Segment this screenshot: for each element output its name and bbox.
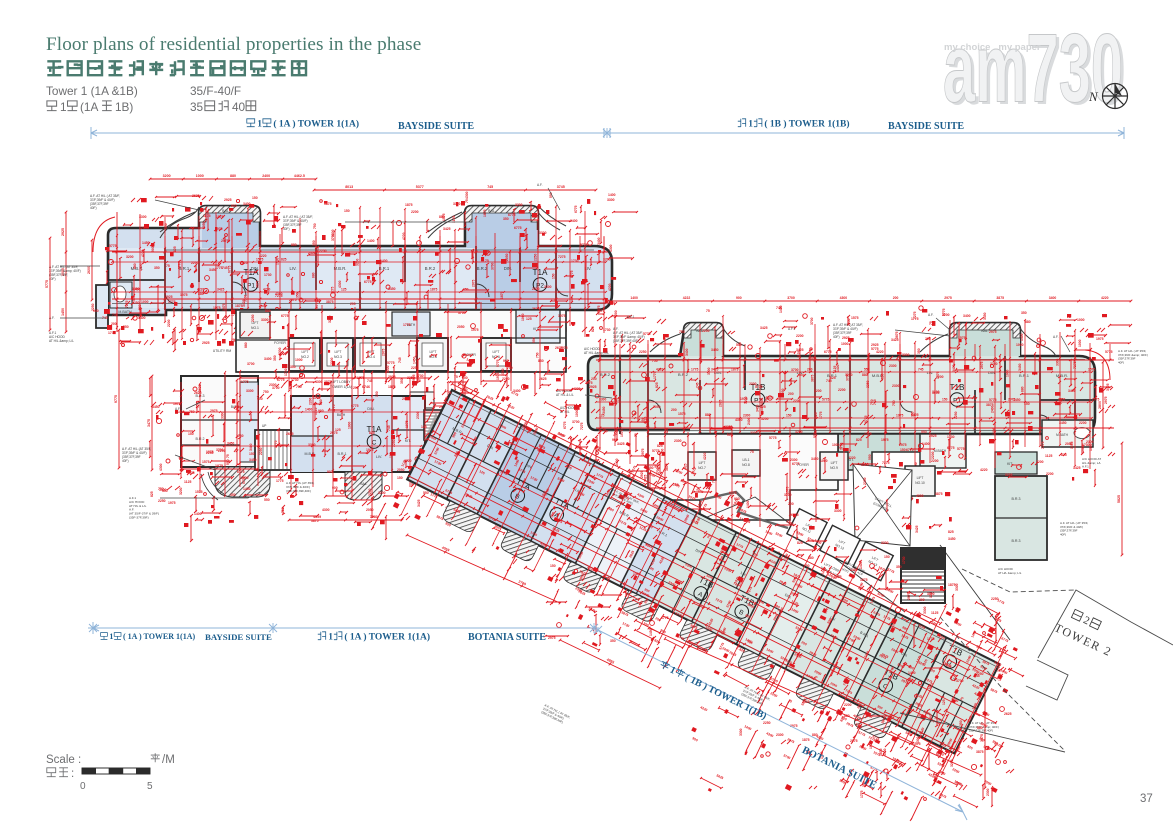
svg-text:2925: 2925 <box>842 336 850 340</box>
svg-text:5: 5 <box>147 781 153 792</box>
svg-text:3200: 3200 <box>881 541 889 545</box>
svg-text:350: 350 <box>463 288 469 292</box>
svg-text:LIFT LOBBY: LIFT LOBBY <box>331 380 351 384</box>
svg-text:3200: 3200 <box>932 390 940 394</box>
svg-text:3400: 3400 <box>963 314 971 318</box>
svg-text:1775: 1775 <box>860 790 864 798</box>
svg-text:1975: 1975 <box>405 420 409 428</box>
svg-text:1730: 1730 <box>902 556 906 564</box>
svg-text:LIFT: LIFT <box>430 350 437 354</box>
svg-text:125: 125 <box>421 425 427 429</box>
svg-text:2925: 2925 <box>224 198 232 202</box>
svg-text:3745: 3745 <box>557 185 565 189</box>
svg-text:1000: 1000 <box>820 459 828 463</box>
svg-text:1575: 1575 <box>195 490 203 494</box>
svg-text:M.BATH: M.BATH <box>1056 433 1069 437</box>
svg-text:125: 125 <box>173 246 177 252</box>
svg-text:150: 150 <box>397 476 403 480</box>
svg-text:2200: 2200 <box>1079 421 1087 425</box>
svg-text:200: 200 <box>807 368 813 372</box>
svg-text:2050: 2050 <box>366 508 374 512</box>
svg-text:2250: 2250 <box>158 499 166 503</box>
svg-text:6775: 6775 <box>792 462 800 466</box>
svg-text:B.R.3: B.R.3 <box>1012 539 1021 543</box>
svg-text:2300: 2300 <box>892 384 900 388</box>
svg-text:7275: 7275 <box>558 255 566 259</box>
svg-text:3300: 3300 <box>923 606 927 614</box>
svg-text:1975: 1975 <box>496 372 500 380</box>
svg-text:3700: 3700 <box>331 233 335 241</box>
svg-text:1000: 1000 <box>295 358 303 362</box>
svg-text:2975: 2975 <box>382 348 386 356</box>
svg-text:1: 1 <box>60 100 67 114</box>
svg-text:4220: 4220 <box>573 387 581 391</box>
svg-text:2050: 2050 <box>397 468 405 472</box>
svg-text:2975: 2975 <box>1008 398 1016 402</box>
svg-text:125: 125 <box>942 699 946 705</box>
svg-text:2625: 2625 <box>1004 712 1012 716</box>
svg-text:3300: 3300 <box>902 353 910 357</box>
svg-text:40F): 40F) <box>1060 532 1066 536</box>
svg-text:LIFT: LIFT <box>493 350 500 354</box>
svg-text:3400: 3400 <box>1049 296 1057 300</box>
svg-text:1400: 1400 <box>367 239 375 243</box>
svg-text:3300: 3300 <box>927 592 935 596</box>
svg-text:3300: 3300 <box>1056 358 1060 366</box>
svg-text:1575: 1575 <box>678 412 686 416</box>
svg-text:1400: 1400 <box>133 288 141 292</box>
svg-text:2300: 2300 <box>330 357 334 365</box>
svg-text:NO.7: NO.7 <box>698 466 706 470</box>
svg-text:3300: 3300 <box>221 411 225 419</box>
svg-text:1000: 1000 <box>141 300 149 304</box>
svg-text:AT H/L & L/L: AT H/L & L/L <box>556 393 574 397</box>
svg-text:5775: 5775 <box>769 436 777 440</box>
svg-text:3700: 3700 <box>791 368 799 372</box>
svg-text:A.F.1: A.F.1 <box>1082 465 1089 469</box>
svg-text:1125: 1125 <box>931 611 938 615</box>
svg-text:1975: 1975 <box>206 450 214 454</box>
svg-text:5775: 5775 <box>755 385 763 389</box>
svg-text:1575: 1575 <box>256 258 264 262</box>
svg-text:NO.10: NO.10 <box>915 481 925 485</box>
svg-text:AT H/L &amp; L/L: AT H/L &amp; L/L <box>49 339 74 343</box>
svg-text:5775: 5775 <box>496 359 500 367</box>
svg-text:750: 750 <box>652 359 658 363</box>
svg-text:AT H/L &amp; L/L: AT H/L &amp; L/L <box>998 571 1022 575</box>
svg-text:2925: 2925 <box>719 399 723 407</box>
svg-text:750: 750 <box>313 223 317 229</box>
svg-text:1875: 1875 <box>203 214 211 218</box>
svg-text:3450: 3450 <box>388 287 396 291</box>
svg-text:2250: 2250 <box>639 350 647 354</box>
svg-text:150: 150 <box>786 414 792 418</box>
svg-text:1125: 1125 <box>314 408 318 415</box>
svg-text:2200: 2200 <box>411 210 419 214</box>
svg-text:6775: 6775 <box>364 280 372 284</box>
svg-text:3875: 3875 <box>811 374 815 382</box>
svg-text:1: 1 <box>328 632 333 642</box>
svg-text:200: 200 <box>614 310 618 316</box>
svg-text:2400: 2400 <box>1081 444 1085 452</box>
svg-text:2300: 2300 <box>986 788 990 796</box>
svg-text:2200: 2200 <box>167 319 171 327</box>
svg-text:745: 745 <box>776 306 782 310</box>
svg-text:4300: 4300 <box>465 191 469 199</box>
svg-text:T1A: T1A <box>243 268 259 277</box>
svg-text:550: 550 <box>123 325 129 329</box>
svg-text:2975: 2975 <box>289 298 297 302</box>
svg-text:2300: 2300 <box>278 347 282 355</box>
svg-text:1000: 1000 <box>196 174 204 178</box>
svg-text:750: 750 <box>263 390 269 394</box>
svg-text:N: N <box>1088 89 1099 104</box>
svg-text:550: 550 <box>736 343 742 347</box>
svg-text:4220: 4220 <box>197 288 205 292</box>
svg-text:4300: 4300 <box>315 380 323 384</box>
svg-text:4220: 4220 <box>1101 296 1109 300</box>
svg-text:1975: 1975 <box>173 402 181 406</box>
svg-text:1975: 1975 <box>366 448 374 452</box>
svg-text:LIFT: LIFT <box>335 350 342 354</box>
svg-text:750: 750 <box>892 400 896 406</box>
svg-text:2300: 2300 <box>776 733 784 737</box>
svg-text:BAYSIDE SUITE: BAYSIDE SUITE <box>205 632 272 642</box>
svg-text:A.F.1: A.F.1 <box>175 407 182 411</box>
svg-text:1400: 1400 <box>570 219 578 223</box>
svg-text:900: 900 <box>503 359 509 363</box>
svg-text:1400: 1400 <box>661 448 665 456</box>
svg-text:350: 350 <box>911 411 915 417</box>
svg-text:150: 150 <box>252 196 258 200</box>
svg-text:75: 75 <box>226 454 230 458</box>
svg-text:880: 880 <box>977 726 983 730</box>
svg-text:6775: 6775 <box>508 213 516 217</box>
svg-text:3300: 3300 <box>834 509 842 513</box>
svg-text:5775: 5775 <box>652 449 660 453</box>
svg-text:350: 350 <box>641 417 645 423</box>
svg-text:2200: 2200 <box>931 459 939 463</box>
svg-text:1875: 1875 <box>405 203 413 207</box>
svg-text:0: 0 <box>80 781 86 792</box>
svg-text:my choice . my paper: my choice . my paper <box>944 42 1041 53</box>
svg-text:900: 900 <box>151 246 155 252</box>
svg-text:2925: 2925 <box>589 385 597 389</box>
svg-text:3700: 3700 <box>810 317 814 325</box>
svg-text:150: 150 <box>900 448 906 452</box>
svg-text:37: 37 <box>1140 793 1153 805</box>
svg-text:880: 880 <box>1021 386 1025 392</box>
svg-text:2925: 2925 <box>202 341 210 345</box>
svg-text:1575: 1575 <box>786 486 790 494</box>
svg-text:2975: 2975 <box>1092 398 1100 402</box>
svg-text:1450: 1450 <box>61 308 65 316</box>
svg-text:200: 200 <box>788 502 794 506</box>
svg-text:2600: 2600 <box>87 266 91 274</box>
svg-text:1775: 1775 <box>840 442 844 450</box>
svg-text:2250: 2250 <box>534 253 538 261</box>
svg-text:(1A: (1A <box>80 100 98 114</box>
svg-text:350: 350 <box>290 365 296 369</box>
svg-text:745: 745 <box>487 185 493 189</box>
svg-text:3425: 3425 <box>711 368 719 372</box>
svg-text:1975: 1975 <box>168 501 176 505</box>
svg-text:1000: 1000 <box>575 409 579 417</box>
svg-text:200: 200 <box>893 296 899 300</box>
svg-text:350: 350 <box>896 565 902 569</box>
svg-text:2250: 2250 <box>1058 398 1066 402</box>
svg-text:5775: 5775 <box>109 244 117 248</box>
svg-text:2925: 2925 <box>165 295 173 299</box>
svg-text:2250: 2250 <box>781 388 785 396</box>
svg-text:1730: 1730 <box>284 368 288 376</box>
svg-text:1875: 1875 <box>483 209 487 217</box>
svg-text:40F): 40F) <box>122 459 129 463</box>
svg-text:150: 150 <box>344 209 350 213</box>
svg-text:A.F.1: A.F.1 <box>788 327 795 331</box>
svg-text:880: 880 <box>244 342 248 348</box>
svg-text:2975: 2975 <box>980 361 984 369</box>
svg-text:1575: 1575 <box>913 742 921 746</box>
svg-text:A.F.: A.F. <box>1053 335 1059 339</box>
svg-text:1575: 1575 <box>213 306 221 310</box>
svg-text:2975: 2975 <box>585 381 593 385</box>
svg-text:880: 880 <box>265 309 271 313</box>
svg-text:880: 880 <box>812 733 818 737</box>
svg-text:3450: 3450 <box>948 537 956 541</box>
svg-text:NO.1: NO.1 <box>251 326 259 330</box>
svg-text:1400: 1400 <box>608 193 616 197</box>
svg-text:3875: 3875 <box>976 750 984 754</box>
svg-text:2050: 2050 <box>457 325 465 329</box>
svg-text:1400: 1400 <box>746 500 750 508</box>
svg-text:3300: 3300 <box>599 398 607 402</box>
svg-text:2250: 2250 <box>368 488 372 496</box>
svg-text:1775: 1775 <box>403 323 411 327</box>
svg-text:( 1A ) TOWER 1(1A): ( 1A ) TOWER 1(1A) <box>273 118 359 129</box>
svg-text:LIV.: LIV. <box>376 455 382 459</box>
svg-text:1730: 1730 <box>603 328 611 332</box>
svg-text:2625: 2625 <box>286 432 294 436</box>
svg-text:550: 550 <box>868 454 872 460</box>
svg-text:3875: 3875 <box>326 300 334 304</box>
svg-text:3400: 3400 <box>1068 389 1076 393</box>
svg-text:4300: 4300 <box>840 296 848 300</box>
svg-text:3200: 3200 <box>950 759 954 767</box>
svg-text:LIV.: LIV. <box>584 266 591 271</box>
svg-text:6775: 6775 <box>947 446 955 450</box>
svg-text:3425: 3425 <box>915 525 919 533</box>
svg-text:75: 75 <box>417 379 421 383</box>
svg-text:2250: 2250 <box>259 447 263 455</box>
svg-text:3400: 3400 <box>756 404 760 412</box>
svg-text:75: 75 <box>166 264 170 268</box>
svg-text:2200: 2200 <box>796 334 804 338</box>
svg-text:3425: 3425 <box>443 227 451 231</box>
svg-text:(35F,37F,39F,40F): (35F,37F,39F,40F) <box>613 339 639 343</box>
svg-text:4220: 4220 <box>141 249 145 257</box>
svg-text:880: 880 <box>1025 320 1031 324</box>
svg-text:2200: 2200 <box>844 703 852 707</box>
svg-text:6775: 6775 <box>237 470 245 474</box>
svg-text:A.F.: A.F. <box>537 183 543 187</box>
svg-text:3400: 3400 <box>264 357 272 361</box>
svg-text:2975: 2975 <box>907 592 911 600</box>
svg-text:2975: 2975 <box>899 443 907 447</box>
svg-text:2250: 2250 <box>725 425 733 429</box>
svg-text:1975: 1975 <box>896 414 904 418</box>
svg-text:2400: 2400 <box>747 417 751 425</box>
svg-text:2200: 2200 <box>838 388 846 392</box>
svg-text:1575: 1575 <box>851 316 859 320</box>
svg-text:3300: 3300 <box>739 728 743 736</box>
svg-text:LIFT: LIFT <box>699 461 706 465</box>
svg-text:BAL.: BAL. <box>361 482 368 486</box>
svg-text:1730: 1730 <box>291 378 299 382</box>
svg-text:880: 880 <box>312 272 316 278</box>
svg-text:880: 880 <box>133 263 137 269</box>
svg-text:3200: 3200 <box>1005 473 1013 477</box>
svg-text:1975: 1975 <box>881 438 889 442</box>
svg-text:4220: 4220 <box>848 456 856 460</box>
svg-text:1: 1 <box>257 119 262 129</box>
svg-text:1875: 1875 <box>235 304 243 308</box>
svg-text:350: 350 <box>312 240 316 246</box>
svg-text:(35F,37F,39F,40F): (35F,37F,39F,40F) <box>286 489 311 493</box>
svg-text:A.F.1: A.F.1 <box>627 315 634 319</box>
svg-text:3200: 3200 <box>163 174 171 178</box>
svg-text:900: 900 <box>736 296 742 300</box>
svg-text:3700: 3700 <box>846 373 850 381</box>
svg-text:1400: 1400 <box>633 572 641 576</box>
svg-text:2200: 2200 <box>931 451 935 459</box>
svg-text:1125: 1125 <box>1045 454 1052 458</box>
svg-text:150: 150 <box>942 398 948 402</box>
svg-text:825: 825 <box>614 398 620 402</box>
svg-text:1730: 1730 <box>264 273 272 277</box>
svg-text:2300: 2300 <box>743 414 751 418</box>
svg-text:825: 825 <box>856 438 862 442</box>
svg-text:1450: 1450 <box>413 356 417 364</box>
svg-text:2300: 2300 <box>889 364 897 368</box>
svg-text:4300: 4300 <box>916 494 924 498</box>
svg-text:3875: 3875 <box>597 305 601 313</box>
svg-text:2300: 2300 <box>532 287 540 291</box>
svg-text:40F): 40F) <box>833 335 840 339</box>
svg-text:3200: 3200 <box>328 315 332 323</box>
svg-text:3700: 3700 <box>572 420 580 424</box>
svg-text:LIFT: LIFT <box>917 476 924 480</box>
svg-text:3875: 3875 <box>935 492 943 496</box>
svg-text:150: 150 <box>884 555 890 559</box>
svg-text:3425: 3425 <box>760 326 768 330</box>
svg-text:3200: 3200 <box>179 487 183 495</box>
svg-text:3450: 3450 <box>1018 363 1022 371</box>
svg-text:3450: 3450 <box>209 268 217 272</box>
svg-text:LB-1: LB-1 <box>743 458 750 462</box>
svg-text:1400: 1400 <box>194 512 202 516</box>
svg-text:3450: 3450 <box>983 312 987 320</box>
svg-text:200: 200 <box>788 392 794 396</box>
svg-text:40F): 40F) <box>90 206 97 210</box>
svg-text:1400: 1400 <box>908 671 916 675</box>
svg-text:B.R.3: B.R.3 <box>1012 497 1021 501</box>
svg-text:3425: 3425 <box>802 700 810 704</box>
svg-text:2250: 2250 <box>319 249 327 253</box>
svg-text:3425: 3425 <box>417 499 421 507</box>
svg-text:550: 550 <box>132 295 136 301</box>
svg-text:1875: 1875 <box>215 464 223 468</box>
svg-text:( 1A ) TOWER 1(1A): ( 1A ) TOWER 1(1A) <box>123 632 195 641</box>
svg-text:4220: 4220 <box>656 368 664 372</box>
svg-text:1875: 1875 <box>860 578 868 582</box>
svg-text:BAL.: BAL. <box>488 209 496 213</box>
svg-text:550: 550 <box>264 498 270 502</box>
svg-text:1975: 1975 <box>558 314 566 318</box>
svg-text:125: 125 <box>760 405 766 409</box>
svg-text:3700: 3700 <box>956 679 964 683</box>
svg-text:1400: 1400 <box>630 296 638 300</box>
svg-text:6775: 6775 <box>824 350 832 354</box>
svg-text:1400: 1400 <box>1020 333 1024 341</box>
svg-text:2050: 2050 <box>1065 442 1073 446</box>
svg-text:1: 1 <box>748 119 753 129</box>
svg-text:3300: 3300 <box>607 198 615 202</box>
svg-text:880: 880 <box>291 243 297 247</box>
svg-text:880: 880 <box>439 215 445 219</box>
svg-text:1400: 1400 <box>138 316 146 320</box>
svg-text:7275: 7275 <box>580 422 584 430</box>
svg-text:B.R.2: B.R.2 <box>477 266 488 271</box>
svg-text:880: 880 <box>705 413 711 417</box>
svg-text:DIN.: DIN. <box>367 407 374 411</box>
svg-text:(35F-37F,39F): (35F-37F,39F) <box>129 516 149 520</box>
svg-text:2975: 2975 <box>560 346 568 350</box>
svg-text:1575: 1575 <box>998 673 1002 681</box>
svg-text:M.BATH: M.BATH <box>934 449 947 453</box>
svg-text:880: 880 <box>230 174 236 178</box>
svg-text:1000: 1000 <box>841 342 849 346</box>
svg-text:Scale :: Scale : <box>46 754 81 766</box>
svg-text:825: 825 <box>657 444 663 448</box>
svg-text:LIFT: LIFT <box>831 461 838 465</box>
svg-text:200: 200 <box>591 377 597 381</box>
svg-text:2050: 2050 <box>653 405 661 409</box>
svg-text:2250: 2250 <box>863 477 867 485</box>
svg-text:3450: 3450 <box>152 405 160 409</box>
svg-text:900: 900 <box>612 438 618 442</box>
svg-text:350: 350 <box>1021 311 1027 315</box>
svg-text:3200: 3200 <box>378 491 386 495</box>
svg-text:2200: 2200 <box>218 449 226 453</box>
svg-text:1: 1 <box>109 632 113 641</box>
svg-text:5377: 5377 <box>416 185 424 189</box>
svg-text:3450: 3450 <box>811 457 819 461</box>
svg-text:Floor plans of residential pro: Floor plans of residential properties in… <box>46 34 421 55</box>
svg-text:825: 825 <box>948 530 954 534</box>
svg-text:BAYSIDE SUITE: BAYSIDE SUITE <box>888 121 964 132</box>
svg-text:BAYSIDE SUITE: BAYSIDE SUITE <box>398 121 474 132</box>
svg-text:1875: 1875 <box>731 368 739 372</box>
svg-text:LIV.: LIV. <box>289 266 296 271</box>
svg-text:A.F.: A.F. <box>928 313 934 317</box>
svg-text:4220: 4220 <box>263 288 271 292</box>
svg-text:5775: 5775 <box>822 398 830 402</box>
svg-text:3700: 3700 <box>247 362 255 366</box>
svg-text:1000: 1000 <box>521 313 525 321</box>
svg-text:2975: 2975 <box>548 636 556 640</box>
svg-text:6775: 6775 <box>729 491 737 495</box>
